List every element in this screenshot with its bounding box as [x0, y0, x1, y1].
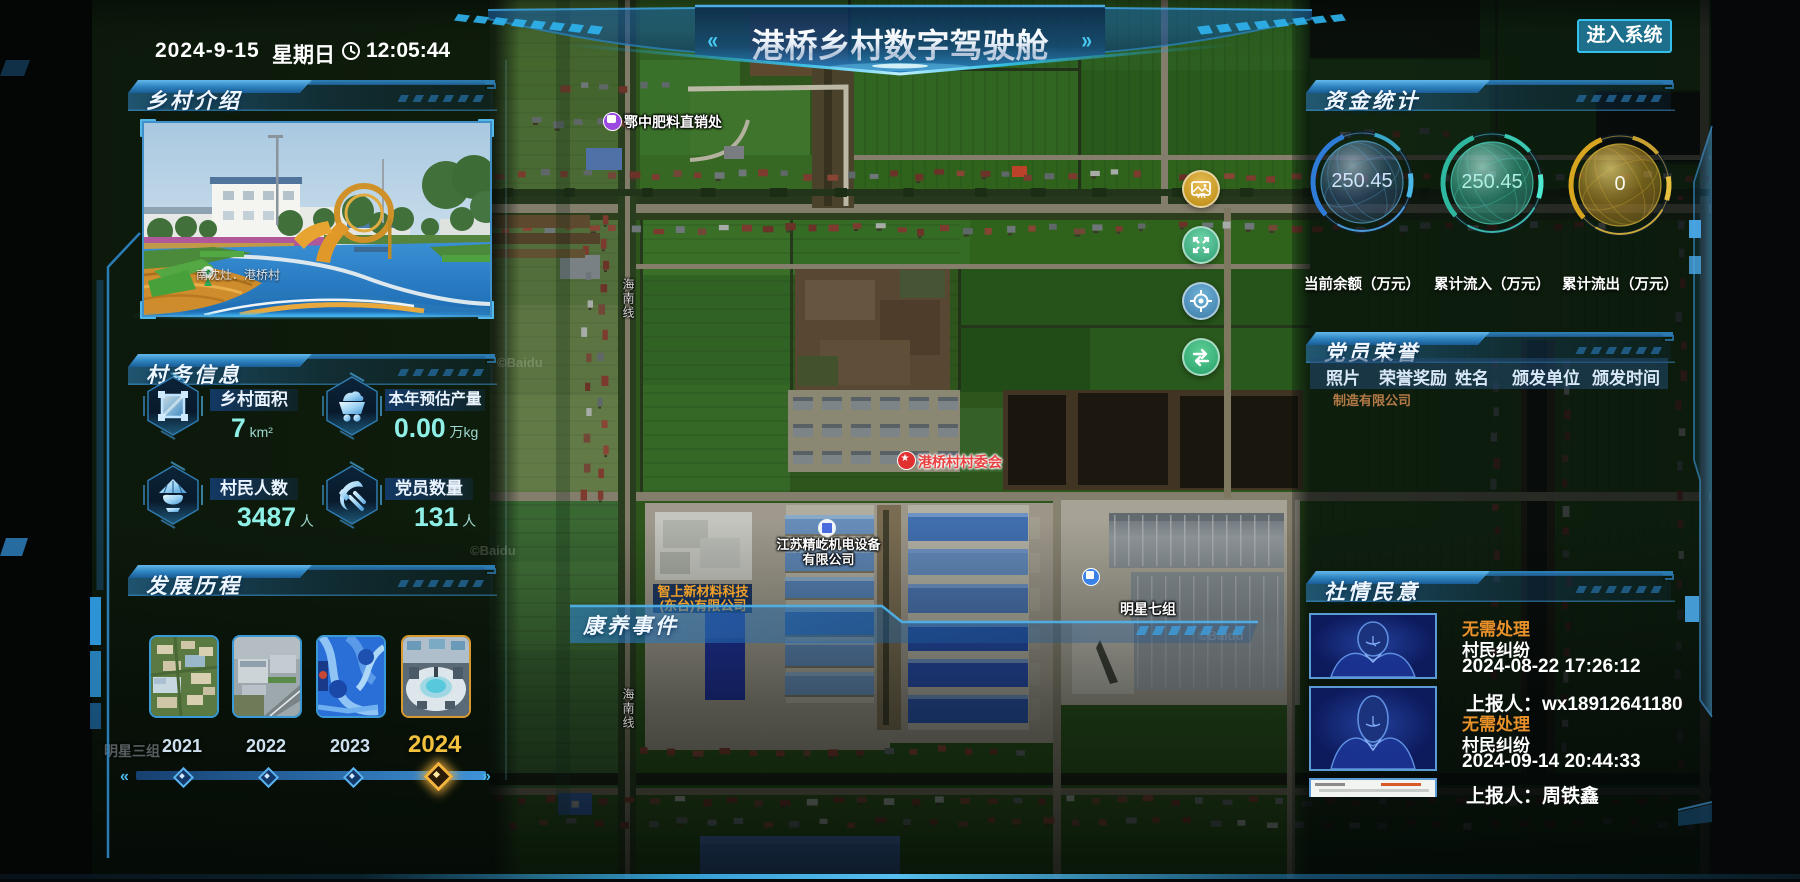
svg-text:VR: VR: [1196, 193, 1206, 200]
